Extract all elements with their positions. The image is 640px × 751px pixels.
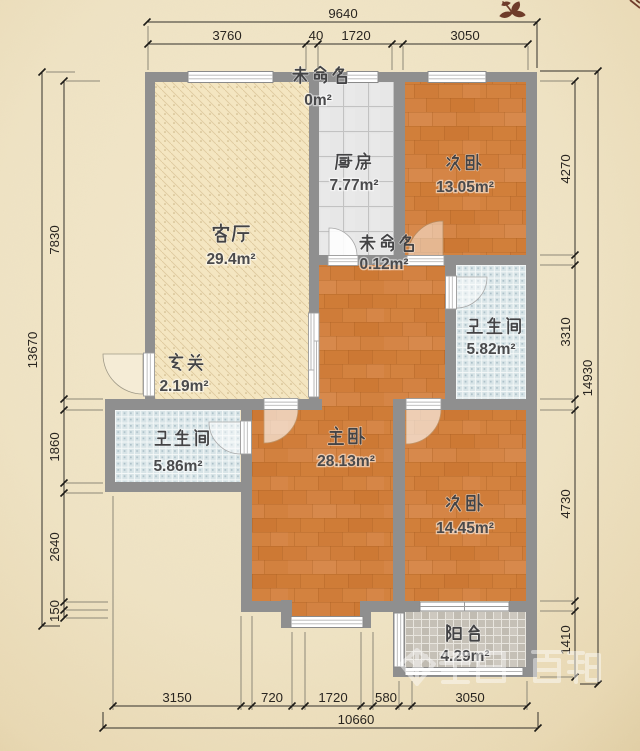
svg-text:4730: 4730 [558, 489, 573, 518]
svg-text:2640: 2640 [47, 532, 62, 561]
svg-text:13.05m²: 13.05m² [436, 179, 494, 196]
svg-text:7.77m²: 7.77m² [329, 177, 378, 194]
svg-text:7830: 7830 [47, 225, 62, 254]
svg-text:28.13m²: 28.13m² [317, 453, 375, 470]
svg-text:1860: 1860 [47, 432, 62, 461]
svg-text:2.19m²: 2.19m² [159, 378, 208, 395]
svg-text:14930: 14930 [580, 360, 595, 397]
svg-text:1720: 1720 [318, 690, 347, 705]
svg-text:9640: 9640 [328, 6, 357, 21]
svg-text:3050: 3050 [455, 690, 484, 705]
svg-text:0m²: 0m² [304, 92, 332, 109]
svg-text:3760: 3760 [212, 28, 241, 43]
svg-text:3150: 3150 [162, 690, 191, 705]
svg-text:580: 580 [375, 690, 397, 705]
svg-text:5.82m²: 5.82m² [466, 341, 515, 358]
svg-text:3050: 3050 [450, 28, 479, 43]
svg-text:1720: 1720 [341, 28, 370, 43]
svg-text:10660: 10660 [338, 712, 375, 727]
svg-text:0.12m²: 0.12m² [359, 256, 408, 273]
svg-text:720: 720 [261, 690, 283, 705]
svg-text:150: 150 [47, 600, 62, 622]
svg-text:14.45m²: 14.45m² [436, 520, 494, 537]
svg-text:40: 40 [309, 28, 324, 43]
svg-text:13670: 13670 [25, 332, 40, 369]
svg-text:3310: 3310 [558, 317, 573, 346]
svg-text:29.4m²: 29.4m² [206, 251, 255, 268]
svg-text:4270: 4270 [558, 154, 573, 183]
svg-text:5.86m²: 5.86m² [153, 458, 202, 475]
